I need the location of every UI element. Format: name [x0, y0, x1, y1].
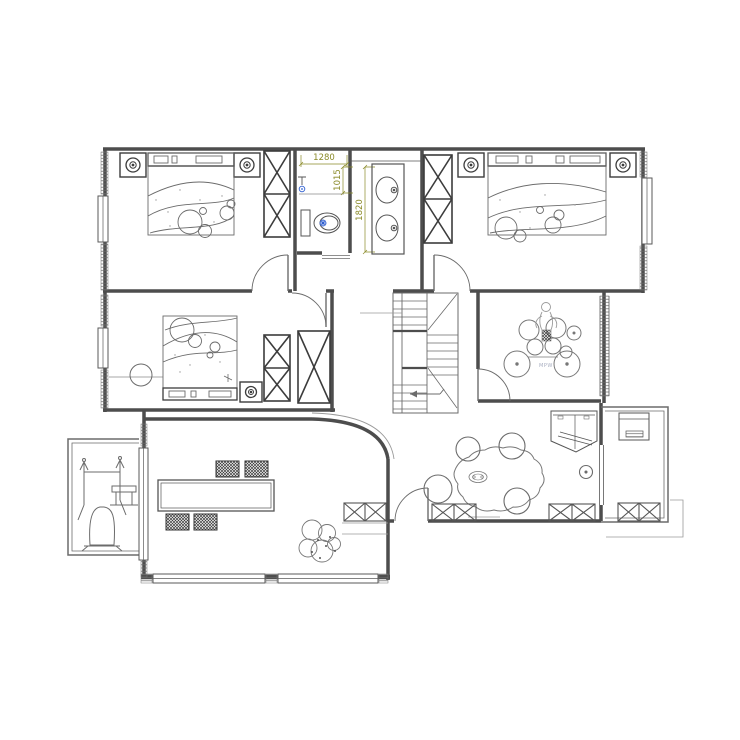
- wardrobe-icon: [264, 335, 290, 401]
- dining-chairs: [166, 461, 268, 530]
- drum-kit-label: MPW: [539, 363, 553, 369]
- wall-window-hatch: [640, 246, 647, 290]
- dimensions: 1280 1015 1820: [299, 153, 375, 254]
- wardrobe-icon: [264, 151, 290, 237]
- door-icon: [292, 293, 326, 327]
- wall-window-hatch: [600, 296, 609, 396]
- wall-curved: [312, 419, 388, 459]
- dim-height-label: 1820: [355, 199, 365, 221]
- music-room: MPW: [504, 303, 581, 378]
- vanity-sinks-icon: [376, 177, 398, 241]
- floor-plan-canvas: 1280 1015 1820: [0, 0, 740, 740]
- tea-table-icon: [454, 447, 544, 511]
- dining-chair-icon: [245, 461, 268, 477]
- balcony-right: [342, 407, 683, 537]
- nightstand-lamp-icon: [458, 153, 484, 177]
- dining-room: [158, 461, 341, 562]
- nightstand-lamp-icon: [240, 382, 262, 402]
- bath-threshold: [322, 256, 350, 259]
- dining-chair-icon: [216, 461, 239, 477]
- dim-width-label: 1280: [313, 153, 335, 163]
- door-icon: [395, 488, 428, 521]
- wall-window-hatch: [101, 370, 108, 408]
- stool-icon: [499, 433, 525, 459]
- base-cabinet-icon: [432, 504, 476, 521]
- dim-depth-label: 1015: [333, 169, 343, 191]
- wall-window-hatch: [640, 152, 647, 177]
- corner-tv-cabinet-icon: [551, 411, 597, 452]
- bedroom-top-left: [120, 151, 290, 238]
- wall-window-hatch: [141, 424, 147, 446]
- wall-window-hatch: [266, 574, 277, 583]
- nightstand-lamp-icon: [120, 153, 146, 177]
- balcony-left: [68, 439, 139, 555]
- dining-chair-icon: [166, 514, 189, 530]
- wardrobe-icon: [424, 155, 452, 243]
- wall-window-hatch: [379, 574, 388, 583]
- wall-window-hatch: [101, 295, 108, 326]
- window-icon: [139, 448, 148, 560]
- stairs-icon: [360, 293, 458, 413]
- tea-room: [424, 411, 649, 517]
- door-icon: [252, 255, 288, 291]
- window-icon: [278, 574, 378, 583]
- nightstand-lamp-icon: [610, 153, 636, 177]
- washing-machine-icon: [619, 413, 649, 440]
- dining-chair-icon: [194, 514, 217, 530]
- plant-icon: [299, 520, 341, 562]
- stool-icon: [580, 466, 593, 479]
- window-icon: [98, 196, 108, 242]
- base-cabinet-icon: [344, 503, 386, 521]
- tea-stools: [424, 433, 593, 514]
- bed-icon: [488, 153, 606, 242]
- window-icon: [642, 178, 652, 244]
- wardrobe-icon: [298, 331, 330, 403]
- exercise-machine-icon: [78, 457, 138, 552]
- wall-window-hatch: [101, 152, 108, 194]
- bed-icon: [163, 316, 237, 400]
- window-icon: [98, 328, 108, 368]
- toilet-icon: [301, 210, 340, 236]
- bedroom-top-right: [424, 153, 636, 243]
- nightstand-lamp-icon: [234, 153, 260, 177]
- wall-window-hatch: [101, 244, 108, 290]
- door-icon: [434, 255, 470, 291]
- shower-icon: [298, 177, 306, 192]
- bed-icon: [148, 153, 235, 238]
- stool-icon: [130, 364, 152, 386]
- door-icon: [478, 369, 510, 401]
- dining-table-icon: [158, 480, 274, 511]
- stool-icon: [504, 488, 530, 514]
- base-cabinet-icon: [549, 504, 595, 521]
- balcony-window-icon: [600, 445, 604, 505]
- window-icon: [153, 574, 265, 583]
- wall-window-hatch: [141, 574, 152, 583]
- bedroom-middle-left: [109, 316, 330, 403]
- floor-plan-svg: 1280 1015 1820: [0, 0, 740, 740]
